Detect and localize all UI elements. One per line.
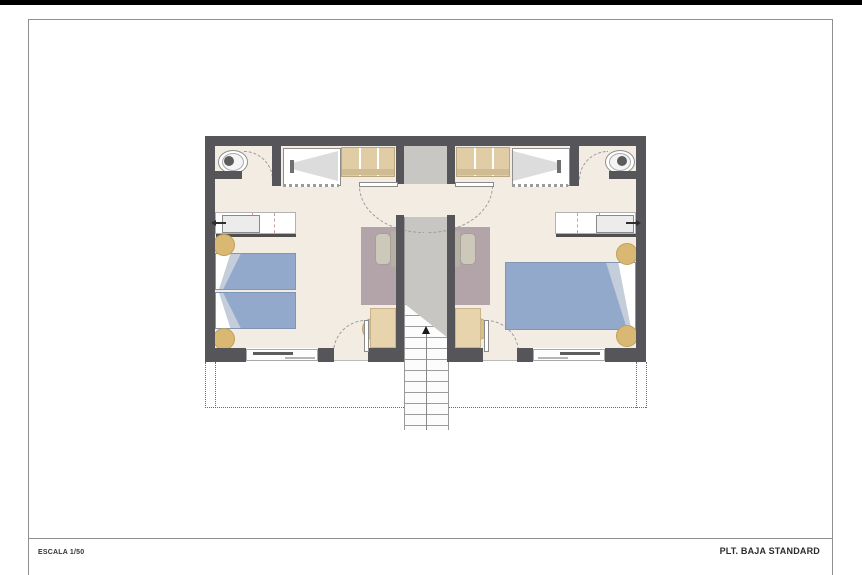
title-block-divider [28, 538, 832, 539]
wall-bottom-left-corner [205, 348, 246, 362]
nightstand-right-top [616, 243, 638, 265]
shower-right-glass [512, 184, 568, 187]
toilet-right-lid [617, 156, 627, 166]
desk-left [370, 308, 396, 348]
wall-bottom-left-pier [318, 348, 334, 362]
wardrobe-right [456, 147, 510, 177]
screenshot-top-bar [0, 0, 862, 5]
drawing-sheet: ESCALA 1/50 PLT. BAJA STANDARD [0, 0, 862, 575]
armchair-right-seat [460, 233, 476, 265]
armchair-left-seat [375, 233, 391, 265]
wall-left [205, 136, 215, 362]
entry-door-leaf-left [359, 182, 398, 187]
window-left [246, 349, 318, 361]
terrace-outline-right-outer [646, 362, 647, 408]
vestibule-pier-right [447, 136, 455, 184]
desk-right [455, 308, 481, 348]
stair-upper-landing [405, 217, 448, 338]
terrace-outline-left-outer [205, 362, 206, 408]
toilet-left-lid [224, 156, 234, 166]
counter-right-arrow [626, 222, 636, 224]
terrace-outline-left-inner [215, 362, 216, 408]
terrace-outline-right-inner [636, 362, 637, 408]
wall-bottom-core-left [368, 348, 404, 362]
counter-left-arrow [216, 222, 226, 224]
wall-stub-bath-right [609, 171, 646, 179]
nightstand-left-top [213, 234, 235, 256]
wall-stub-bath-left [205, 171, 242, 179]
twin-bed-upper [215, 253, 296, 290]
wall-right [636, 136, 646, 362]
counter-right-edge [556, 234, 636, 237]
wall-bottom-right-corner [605, 348, 646, 362]
stair-direction-arrow-icon [422, 326, 430, 334]
wall-top [205, 136, 646, 146]
twin-bed-lower [215, 292, 296, 329]
room-door-leaf-right [484, 320, 489, 352]
counter-right-arrowhead-icon [636, 220, 641, 226]
counter-right-divider-1 [577, 213, 578, 233]
plan-title: PLT. BAJA STANDARD [720, 546, 820, 556]
staircase [404, 217, 449, 430]
vestibule-pier-left [396, 136, 404, 184]
counter-left-arrowhead-icon [211, 220, 216, 226]
scale-label: ESCALA 1/50 [38, 549, 84, 556]
entry-vestibule-floor [404, 146, 447, 184]
room-door-leaf-left [364, 320, 369, 352]
window-right [533, 349, 605, 361]
wardrobe-left [341, 147, 395, 177]
shower-left-glass [283, 184, 339, 187]
wall-bottom-core-right [447, 348, 483, 362]
stair-center-line [426, 334, 427, 430]
nightstand-left-bottom [213, 328, 235, 350]
nightstand-right-bottom [616, 325, 638, 347]
core-pier-right [447, 215, 455, 348]
core-pier-left [396, 215, 404, 348]
shower-right-fixture [557, 160, 561, 173]
double-bed [505, 262, 636, 330]
wall-divider-bath-right [570, 146, 579, 186]
entry-door-leaf-right [455, 182, 494, 187]
counter-right-sink [596, 215, 634, 233]
wall-divider-bath-left [272, 146, 281, 186]
wall-bottom-right-pier [517, 348, 533, 362]
counter-left-divider-2 [274, 213, 275, 233]
counter-left-sink [222, 215, 260, 233]
shower-left-fixture [290, 160, 294, 173]
